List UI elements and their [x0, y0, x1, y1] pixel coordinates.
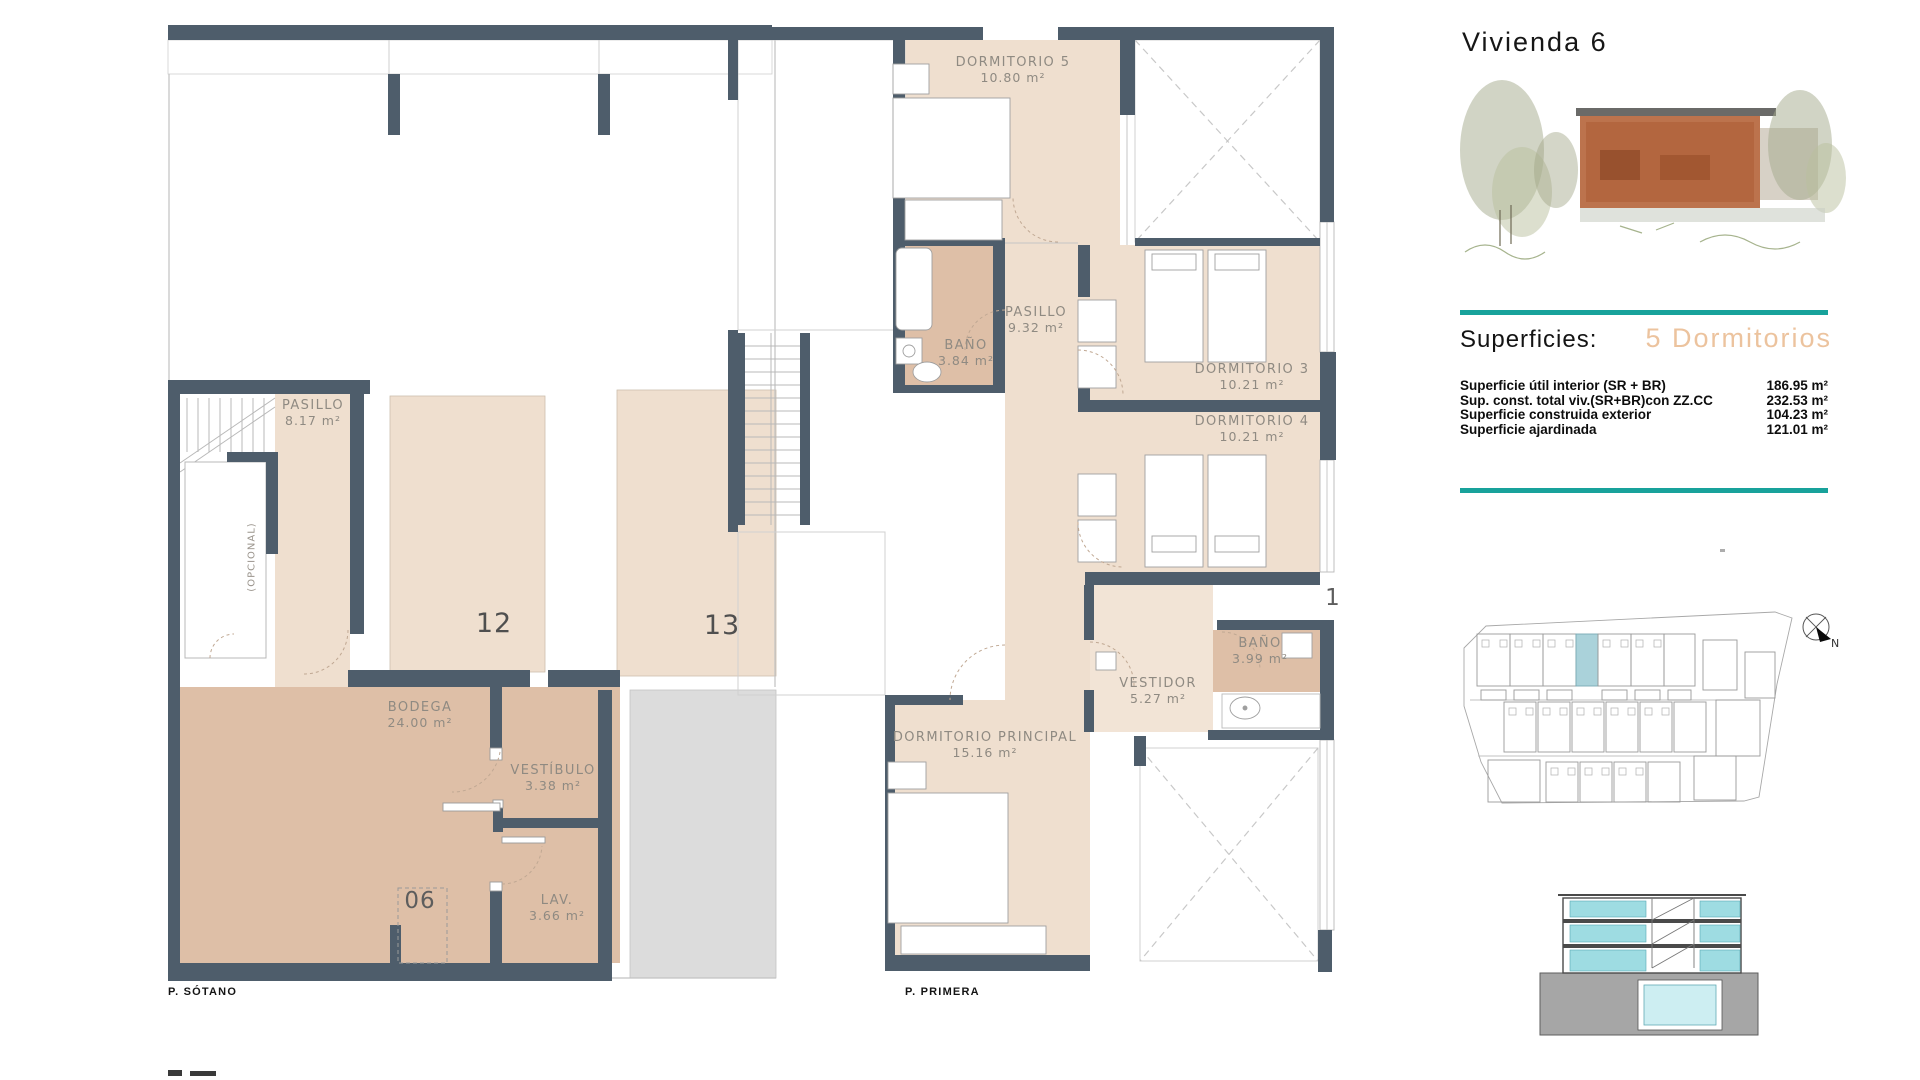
room-label-dormitorio-3: DORMITORIO 3 10.21 m² [1195, 362, 1310, 392]
room-label-bano-2: BAÑO 3.99 m² [1232, 636, 1288, 666]
building-section [1540, 895, 1758, 1035]
room-label-pasillo-sotano: PASILLO 8.17 m² [282, 398, 344, 428]
surface-row: Superficie útil interior (SR + BR) 186.9… [1460, 379, 1828, 394]
page-title: Vivienda 6 [1462, 27, 1608, 58]
north-label: N [1831, 637, 1839, 650]
plot-number-06: 06 [404, 888, 435, 914]
surfaces-table: Superficie útil interior (SR + BR) 186.9… [1460, 379, 1828, 437]
dwelling-type-label: 5 Dormitorios [1645, 323, 1832, 354]
exterior-patio [630, 690, 776, 978]
surface-row-value: 121.01 m² [1766, 423, 1828, 438]
plan-primera [728, 27, 1336, 972]
windows-primera [1320, 222, 1334, 930]
room-label-lav: LAV. 3.66 m² [529, 893, 585, 923]
surface-row: Superficie ajardinada 121.01 m² [1460, 423, 1828, 438]
room-label-dormitorio-4: DORMITORIO 4 10.21 m² [1195, 414, 1310, 444]
highlighted-unit [1576, 634, 1598, 686]
stray-mark [1720, 549, 1725, 552]
staircase-sotano [180, 398, 275, 658]
compass-icon [1803, 614, 1831, 642]
plan-sotano [168, 25, 776, 981]
surface-row-value: 186.95 m² [1766, 379, 1828, 394]
room-label-vestidor: VESTIDOR 5.27 m² [1119, 676, 1197, 706]
room-label-bodega: BODEGA 24.00 m² [388, 700, 453, 730]
room-label-bano-1: BAÑO 3.84 m² [938, 338, 994, 368]
surface-row-label: Sup. const. total viv.(SR+BR)con ZZ.CC [1460, 394, 1713, 409]
surface-row-label: Superficie útil interior (SR + BR) [1460, 379, 1666, 394]
room-label-pasillo-primera: PASILLO 9.32 m² [1005, 305, 1067, 335]
surface-row: Superficie construida exterior 104.23 m² [1460, 408, 1828, 423]
surface-row-label: Superficie ajardinada [1460, 423, 1597, 438]
sheet-graphics [0, 0, 1920, 1080]
plot-number-13: 13 [704, 610, 740, 641]
divider-bottom [1460, 488, 1828, 493]
site-plan [1464, 612, 1792, 803]
surface-row-value: 232.53 m² [1766, 394, 1828, 409]
room-label-dormitorio-5: DORMITORIO 5 10.80 m² [956, 55, 1071, 85]
room-label-vestibulo: VESTÍBULO 3.38 m² [510, 763, 595, 793]
void-hatch-top [1135, 40, 1320, 242]
plan-caption-primera: P. PRIMERA [905, 986, 980, 998]
surface-row-label: Superficie construida exterior [1460, 408, 1651, 423]
surface-row: Sup. const. total viv.(SR+BR)con ZZ.CC 2… [1460, 394, 1828, 409]
house-sketch [1460, 80, 1846, 259]
edge-plot-number: 1 [1325, 585, 1341, 611]
surfaces-label: Superficies: [1460, 326, 1597, 354]
void-hatch-bottom [1140, 748, 1318, 961]
stair-note-opcional: (OPCIONAL) [247, 522, 258, 591]
surface-row-value: 104.23 m² [1766, 408, 1828, 423]
drawing-sheet: { "header": { "title": "Vivienda 6" }, "… [0, 0, 1920, 1080]
room-label-dormitorio-principal: DORMITORIO PRINCIPAL 15.16 m² [893, 730, 1077, 760]
surfaces-heading: Superficies: 5 Dormitorios [1460, 323, 1832, 354]
divider-top [1460, 310, 1828, 315]
scan-artifact [168, 1070, 216, 1076]
plan-caption-sotano: P. SÓTANO [168, 986, 237, 998]
plot-number-12: 12 [476, 608, 512, 639]
